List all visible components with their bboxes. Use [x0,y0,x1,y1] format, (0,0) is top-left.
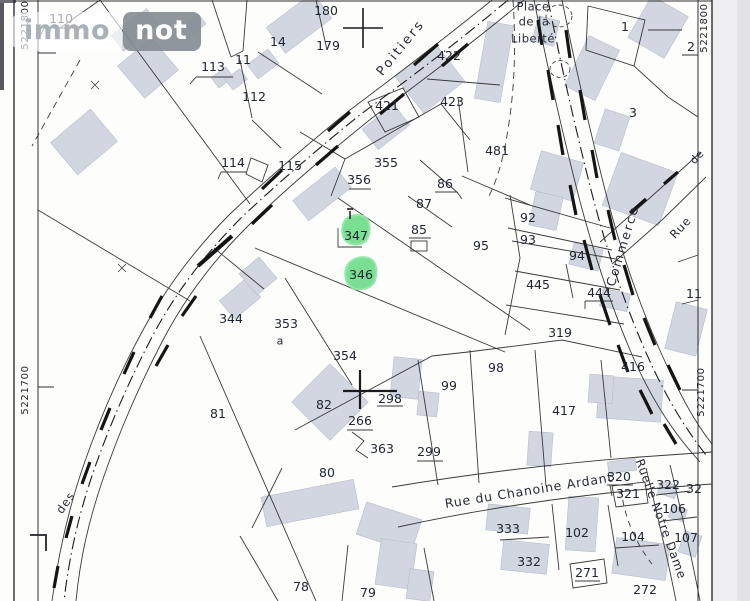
immonot-logo: immo not [8,12,201,51]
cadastral-map [0,0,750,601]
immonot-logo-not: not [123,12,201,51]
parcel-347-highlight [342,215,369,245]
parcel-346-highlight [345,257,376,289]
cadastral-map-page: immo not 1101131114112180179422421423481… [0,0,750,601]
immonot-logo-immo: immo [8,12,122,51]
